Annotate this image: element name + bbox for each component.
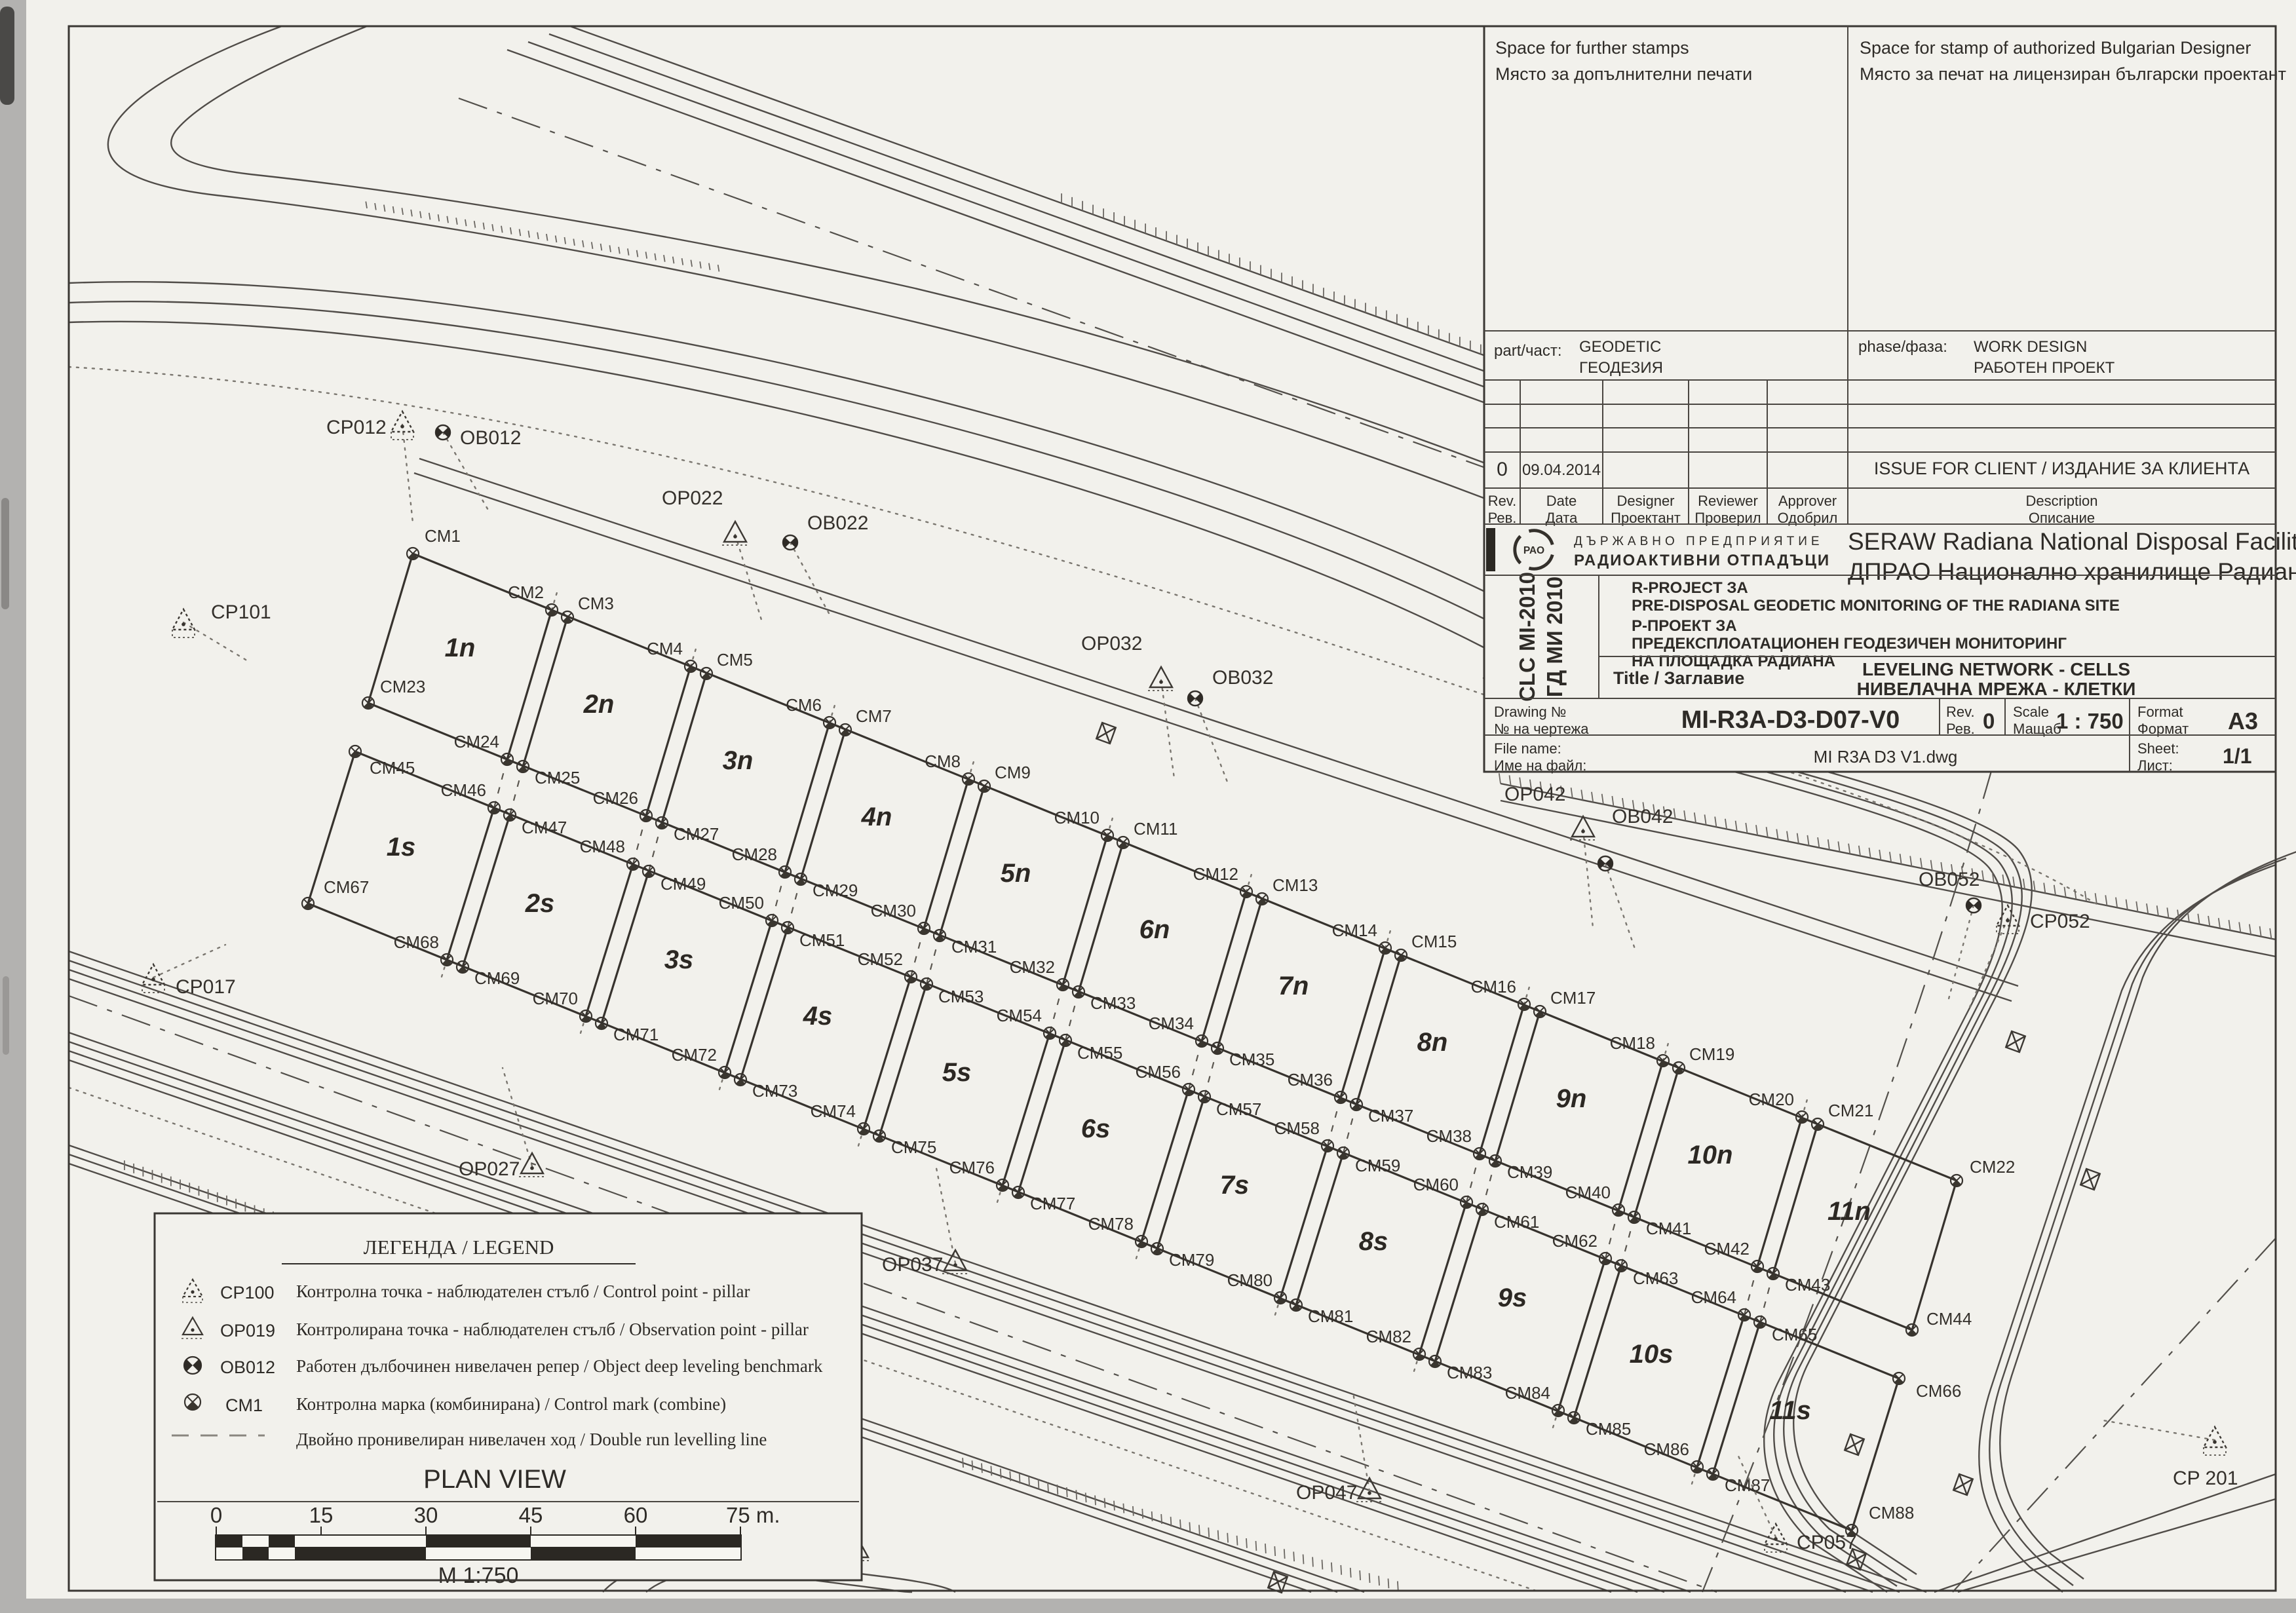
cm-mark-CM13 <box>1256 893 1268 905</box>
legend-code-cp: CP100 <box>220 1283 275 1303</box>
point-label-OB012: OB012 <box>460 427 521 449</box>
cell-label-6s: 6s <box>1081 1114 1111 1143</box>
point-label-OB022: OB022 <box>807 512 868 534</box>
header-designer-en: Designer <box>1603 493 1689 510</box>
cm-mark-CM1 <box>407 548 419 560</box>
cm-label-CM14: CM14 <box>1332 920 1377 940</box>
scale-label-bg: Мащаб <box>2013 721 2061 738</box>
cm-mark-CM43 <box>1767 1268 1779 1280</box>
rev-value: 0 <box>1983 709 1995 734</box>
legend-code-ob: OB012 <box>220 1357 275 1378</box>
cell-label-8s: 8s <box>1359 1227 1388 1256</box>
cm-mark-CM50 <box>766 915 778 926</box>
header-designer-bg: Проектант <box>1603 510 1689 527</box>
scan-bottom-strip <box>0 1599 2296 1613</box>
rao-logo-icon: РАО <box>1508 525 1559 574</box>
cell-label-11s: 11s <box>1769 1396 1811 1425</box>
revision-number: 0 <box>1484 459 1520 481</box>
cell-label-7n: 7n <box>1278 972 1309 1000</box>
file-name-value: MI R3A D3 V1.dwg <box>1641 747 2130 767</box>
scale-tick-60: 60 <box>609 1503 662 1528</box>
cm-label-CM19: CM19 <box>1689 1044 1734 1064</box>
levelling-line-icon <box>169 1426 267 1445</box>
cm-label-CM87: CM87 <box>1725 1475 1770 1495</box>
point-label-CP017: CP017 <box>176 976 236 998</box>
cm-label-CM72: CM72 <box>672 1045 717 1065</box>
cm-mark-CM81 <box>1290 1299 1302 1311</box>
cm-label-CM2: CM2 <box>508 582 544 602</box>
cell-label-1s: 1s <box>387 833 416 862</box>
cm-mark-CM66 <box>1893 1373 1905 1384</box>
point-label-CP012: CP012 <box>326 417 387 438</box>
cm-label-CM35: CM35 <box>1229 1050 1274 1069</box>
phase-label: phase/фаза: <box>1858 338 1947 356</box>
stamps-right-en: Space for stamp of authorized Bulgarian … <box>1860 38 2251 58</box>
cm-label-CM18: CM18 <box>1610 1033 1655 1053</box>
cm-label-CM5: CM5 <box>717 650 753 670</box>
cm-label-CM27: CM27 <box>674 824 719 844</box>
point-label-OB042: OB042 <box>1612 806 1673 827</box>
cell-label-10n: 10n <box>1688 1141 1733 1169</box>
cm-label-CM50: CM50 <box>719 893 764 913</box>
header-approver-bg: Одобрил <box>1767 510 1848 527</box>
cm-label-CM21: CM21 <box>1828 1101 1873 1120</box>
cm-label-CM32: CM32 <box>1010 957 1055 977</box>
code-line1: CLC MI-2010 <box>1514 572 1542 702</box>
cm-label-CM25: CM25 <box>535 768 580 788</box>
cm-mark-CM2 <box>546 604 558 616</box>
cm-label-CM47: CM47 <box>522 818 567 837</box>
cm-mark-CM48 <box>627 858 639 870</box>
cm-mark-CM28 <box>779 866 791 878</box>
cm-label-CM29: CM29 <box>813 881 858 900</box>
cm-label-CM22: CM22 <box>1970 1157 2015 1177</box>
point-label-OB052: OB052 <box>1919 869 1980 890</box>
cm-label-CM45: CM45 <box>370 758 415 778</box>
culvert-box-icon <box>1096 723 1116 744</box>
cm-mark-CM12 <box>1240 886 1252 898</box>
cm-label-CM81: CM81 <box>1308 1306 1353 1326</box>
cm-label-CM64: CM64 <box>1691 1287 1736 1307</box>
point-label-OP027: OP027 <box>459 1158 520 1180</box>
culvert-box-icon <box>2080 1169 2100 1190</box>
rev-label-bg: Рев. <box>1946 721 1975 738</box>
cm-label-CM69: CM69 <box>474 968 520 988</box>
project-line1: R-PROJECT ЗА <box>1632 579 1748 598</box>
title-value-en: LEVELING NETWORK - CELLS <box>1717 659 2276 680</box>
cm-mark-CM44 <box>1906 1324 1918 1336</box>
scanned-drawing-page: CM1CM2CM3CM4CM5CM6CM7CM8CM9CM10CM11CM12C… <box>0 0 2296 1613</box>
facility-name-en: SERAW Radiana National Disposal Facility <box>1848 528 2276 556</box>
benchmark-OB012 <box>436 425 450 440</box>
benchmark-icon <box>177 1350 208 1381</box>
point-label-OB032: OB032 <box>1212 667 1273 689</box>
sheet-label-en: Sheet: <box>2137 740 2179 757</box>
cm-mark-CM8 <box>963 773 974 785</box>
cm-label-CM82: CM82 <box>1366 1327 1411 1346</box>
cm-label-CM59: CM59 <box>1355 1156 1400 1175</box>
cm-label-CM52: CM52 <box>858 949 903 969</box>
pillar-CP101 <box>172 609 195 637</box>
cm-mark-CM52 <box>905 971 917 983</box>
header-date-en: Date <box>1520 493 1603 510</box>
drawing-number-label-bg: № на чертежа <box>1494 721 1588 738</box>
cm-label-CM9: CM9 <box>995 763 1031 782</box>
cm-mark-CM77 <box>1012 1186 1024 1198</box>
cell-label-10s: 10s <box>1630 1340 1674 1369</box>
sheet-label-bg: Лист: <box>2137 757 2173 774</box>
cm-mark-CM80 <box>1274 1292 1286 1304</box>
cm-label-CM73: CM73 <box>752 1081 797 1101</box>
cm-mark-CM37 <box>1350 1099 1362 1110</box>
cm-mark-CM11 <box>1117 837 1129 848</box>
cm-mark-CM10 <box>1101 829 1113 841</box>
culvert-box-icon <box>1845 1434 1864 1455</box>
scale-tick-15: 15 <box>295 1503 347 1528</box>
cm-mark-CM59 <box>1337 1147 1349 1159</box>
cm-label-CM68: CM68 <box>394 932 439 952</box>
cm-mark-CM30 <box>918 922 930 934</box>
cm-label-CM83: CM83 <box>1447 1363 1492 1382</box>
revision-date: 09.04.2014 <box>1520 461 1603 480</box>
culvert-box-icon <box>1953 1474 1973 1495</box>
format-value: A3 <box>2228 708 2258 735</box>
pillar-CP012 <box>391 411 413 440</box>
cm-label-CM16: CM16 <box>1471 977 1516 996</box>
code-line2: ГД МИ 2010 <box>1542 572 1569 702</box>
cm-label-CM15: CM15 <box>1411 932 1457 951</box>
cm-label-CM37: CM37 <box>1368 1106 1413 1126</box>
project-line3: Р-ПРОЕКТ ЗА <box>1632 617 1737 636</box>
cm-label-CM66: CM66 <box>1916 1381 1961 1401</box>
pillar-CP 201 <box>2204 1427 2226 1455</box>
legend-heading: ЛЕГЕНДА / LEGEND <box>282 1236 636 1264</box>
point-label-OP037: OP037 <box>882 1254 943 1276</box>
cm-label-CM57: CM57 <box>1216 1099 1261 1119</box>
cell-label-9n: 9n <box>1556 1084 1587 1113</box>
cm-label-CM48: CM48 <box>580 837 625 856</box>
cm-mark-CM45 <box>349 746 361 757</box>
cm-mark-CM35 <box>1212 1042 1223 1054</box>
cm-label-CM63: CM63 <box>1633 1268 1678 1288</box>
cm-label-CM34: CM34 <box>1149 1014 1194 1033</box>
cm-mark-CM23 <box>362 697 374 709</box>
cm-label-CM51: CM51 <box>799 930 845 950</box>
cm-mark-CM67 <box>302 898 314 909</box>
scale-caption: M 1:750 <box>367 1563 590 1589</box>
header-description-bg: Описание <box>1848 510 2276 527</box>
cm-mark-CM83 <box>1429 1356 1441 1367</box>
project-line4: ПРЕДЕКСПЛОАТАЦИОНЕН ГЕОДЕЗИЧЕН МОНИТОРИН… <box>1632 635 2067 653</box>
legend-code-op: OP019 <box>220 1321 275 1341</box>
cm-label-CM76: CM76 <box>949 1158 995 1177</box>
cm-mark-CM14 <box>1379 942 1391 954</box>
cm-label-CM44: CM44 <box>1926 1309 1972 1329</box>
cm-mark-CM87 <box>1707 1468 1719 1480</box>
cm-mark-CM32 <box>1057 979 1069 991</box>
cm-label-CM12: CM12 <box>1193 864 1238 884</box>
cm-mark-CM36 <box>1335 1091 1347 1103</box>
point-label-OP047: OP047 <box>1296 1482 1357 1504</box>
culvert-box-icon <box>2006 1031 2025 1052</box>
cm-label-CM77: CM77 <box>1030 1194 1075 1213</box>
scan-edge-strip <box>0 0 26 1613</box>
cm-label-CM61: CM61 <box>1494 1212 1539 1232</box>
project-code-vertical: CLC MI-2010 ГД МИ 2010 <box>1484 575 1599 698</box>
cm-mark-CM15 <box>1395 949 1407 961</box>
cm-label-CM55: CM55 <box>1077 1043 1122 1063</box>
cm-mark-CM6 <box>824 717 835 729</box>
benchmark-OB022 <box>783 535 797 550</box>
phase-value-bg: РАБОТЕН ПРОЕКТ <box>1974 359 2114 377</box>
cm-mark-CM63 <box>1615 1260 1627 1272</box>
cm-label-CM80: CM80 <box>1227 1270 1272 1290</box>
cell-label-1n: 1n <box>445 634 476 662</box>
phase-value-en: WORK DESIGN <box>1974 338 2087 356</box>
cm-mark-CM17 <box>1534 1006 1546 1017</box>
drawing-number-label-en: Drawing № <box>1494 704 1566 721</box>
cm-mark-CM57 <box>1198 1091 1210 1103</box>
format-label-bg: Формат <box>2137 721 2189 738</box>
cm-label-CM54: CM54 <box>997 1006 1042 1025</box>
cm-label-CM79: CM79 <box>1169 1250 1214 1270</box>
legend-text-line: Двойно пронивелиран нивелачен ход / Doub… <box>296 1430 767 1450</box>
cell-label-5s: 5s <box>942 1058 972 1087</box>
cm-mark-CM85 <box>1568 1412 1580 1424</box>
cm-mark-CM46 <box>488 802 500 814</box>
cm-mark-CM24 <box>501 753 513 765</box>
pillar-CP057 <box>1765 1524 1787 1552</box>
scale-tick-75: 75 m. <box>726 1503 780 1528</box>
pillar-OP042 <box>1570 816 1596 840</box>
cm-label-CM1: CM1 <box>425 526 461 546</box>
cm-label-CM53: CM53 <box>938 987 984 1006</box>
cell-label-9s: 9s <box>1498 1283 1527 1312</box>
legend-text-cm: Контролна марка (комбинирана) / Control … <box>296 1394 726 1414</box>
cm-label-CM23: CM23 <box>380 677 425 696</box>
part-label: part/част: <box>1494 342 1562 360</box>
org-name-line2: РАДИОАКТИВНИ ОТПАДЪЦИ <box>1574 552 1830 570</box>
scale-value: 1 : 750 <box>2056 709 2124 734</box>
cm-mark-CM56 <box>1183 1084 1195 1095</box>
cm-label-CM43: CM43 <box>1785 1275 1830 1295</box>
cm-label-CM56: CM56 <box>1136 1062 1181 1082</box>
legend-text-ob: Работен дълбочинен нивелачен репер / Obj… <box>296 1356 822 1376</box>
scale-label-en: Scale <box>2013 704 2049 721</box>
cm-label-CM28: CM28 <box>732 844 777 864</box>
point-label-CP057: CP057 <box>1797 1532 1857 1553</box>
cm-label-CM78: CM78 <box>1088 1214 1134 1234</box>
benchmark-OB052 <box>1966 898 1981 913</box>
point-label-OP032: OP032 <box>1081 633 1142 655</box>
cm-label-CM33: CM33 <box>1090 993 1136 1013</box>
plan-view-label: PLAN VIEW <box>298 1465 691 1494</box>
cm-mark-CM22 <box>1951 1175 1962 1186</box>
cm-label-CM74: CM74 <box>811 1101 856 1121</box>
cm-mark-CM65 <box>1754 1316 1766 1328</box>
cm-label-CM86: CM86 <box>1644 1439 1689 1459</box>
cm-label-CM38: CM38 <box>1426 1126 1472 1146</box>
cm-mark-CM70 <box>580 1010 592 1022</box>
drawing-number: MI-R3A-D3-D07-V0 <box>1641 706 1940 734</box>
rev-label-en: Rev. <box>1946 704 1975 721</box>
cm-label-CM30: CM30 <box>871 901 916 920</box>
point-label-CP 201: CP 201 <box>2173 1468 2238 1489</box>
stamps-left-bg: Място за допълнителни печати <box>1495 64 1752 85</box>
part-value-en: GEODETIC <box>1579 338 1661 356</box>
file-name-label-en: File name: <box>1494 740 1561 757</box>
header-approver-en: Approver <box>1767 493 1848 510</box>
cm-mark-CM4 <box>685 660 697 672</box>
cm-label-CM6: CM6 <box>786 695 822 715</box>
cm-mark-CM54 <box>1044 1027 1056 1039</box>
cm-label-CM84: CM84 <box>1505 1383 1550 1403</box>
cm-mark-CM26 <box>640 810 652 822</box>
benchmark-OB042 <box>1598 856 1613 871</box>
cm-label-CM3: CM3 <box>578 594 614 613</box>
cm-label-CM20: CM20 <box>1749 1090 1794 1109</box>
header-description-en: Description <box>1848 493 2276 510</box>
revision-description: ISSUE FOR CLIENT / ИЗДАНИЕ ЗА КЛИЕНТА <box>1848 459 2276 479</box>
legend-text-cp: Контролна точка - наблюдателен стълб / C… <box>296 1281 750 1302</box>
cm-label-CM42: CM42 <box>1704 1239 1750 1259</box>
header-reviewer-en: Reviewer <box>1689 493 1767 510</box>
observation-point-icon <box>176 1312 210 1346</box>
svg-text:РАО: РАО <box>1523 545 1544 556</box>
cm-label-CM67: CM67 <box>324 877 369 897</box>
cell-label-8n: 8n <box>1417 1028 1448 1057</box>
title-value-bg: НИВЕЛАЧНА МРЕЖА - КЛЕТКИ <box>1717 679 2276 700</box>
cm-label-CM36: CM36 <box>1288 1070 1333 1090</box>
cm-label-CM31: CM31 <box>951 937 997 957</box>
cm-label-CM49: CM49 <box>660 874 706 894</box>
cell-label-7s: 7s <box>1220 1171 1250 1200</box>
cell-label-2s: 2s <box>525 889 555 918</box>
cm-mark-CM55 <box>1060 1034 1071 1046</box>
pillar-OP022 <box>722 522 748 545</box>
cm-mark-CM72 <box>719 1067 731 1078</box>
control-point-icon <box>176 1274 210 1308</box>
cm-mark-CM76 <box>997 1179 1008 1191</box>
format-label-en: Format <box>2137 704 2183 721</box>
pillar-OP032 <box>1148 667 1174 691</box>
pillar-CP017 <box>142 964 164 993</box>
cell-label-4s: 4s <box>803 1002 833 1031</box>
cell-label-2n: 2n <box>583 690 615 719</box>
file-name-label-bg: Име на файл: <box>1494 757 1586 774</box>
header-rev-en: Rev. <box>1484 493 1520 510</box>
stamps-left-en: Space for further stamps <box>1495 38 1689 58</box>
control-mark-icon <box>177 1386 208 1418</box>
cm-label-CM71: CM71 <box>613 1025 659 1044</box>
cm-label-CM46: CM46 <box>441 780 486 800</box>
cm-label-CM13: CM13 <box>1272 875 1318 895</box>
scale-tick-30: 30 <box>400 1503 452 1528</box>
point-label-OP022: OP022 <box>662 487 723 509</box>
cm-label-CM85: CM85 <box>1586 1419 1631 1439</box>
cell-label-5n: 5n <box>1001 859 1031 888</box>
cm-label-CM62: CM62 <box>1552 1231 1598 1251</box>
point-label-CP101: CP101 <box>211 601 271 623</box>
header-date-bg: Дата <box>1520 510 1603 527</box>
scale-bar <box>215 1534 742 1561</box>
project-line2: PRE-DISPOSAL GEODETIC MONITORING OF THE … <box>1632 597 2120 615</box>
cm-mark-CM19 <box>1673 1062 1685 1074</box>
sheet-value: 1/1 <box>2223 744 2251 769</box>
cm-mark-CM58 <box>1322 1140 1333 1152</box>
scan-smudge-2 <box>1 498 9 609</box>
cm-label-CM70: CM70 <box>533 989 578 1008</box>
cm-mark-CM33 <box>1073 986 1084 998</box>
cm-label-CM58: CM58 <box>1274 1118 1320 1138</box>
scan-smudge-3 <box>3 976 9 1055</box>
part-value-bg: ГЕОДЕЗИЯ <box>1579 359 1663 377</box>
stamps-right-bg: Място за печат на лицензиран български п… <box>1860 64 2286 85</box>
cm-mark-CM68 <box>441 954 453 966</box>
cm-label-CM40: CM40 <box>1565 1183 1611 1202</box>
cm-label-CM65: CM65 <box>1772 1325 1817 1344</box>
cm-mark-CM39 <box>1489 1155 1501 1167</box>
scale-tick-0: 0 <box>190 1503 242 1528</box>
cm-mark-CM34 <box>1196 1035 1208 1047</box>
legend-text-op: Контролирана точка - наблюдателен стълб … <box>296 1319 809 1340</box>
header-reviewer-bg: Проверил <box>1689 510 1767 527</box>
org-name-line1: ДЪРЖАВНО ПРЕДПРИЯТИЕ <box>1574 535 1824 549</box>
header-rev-bg: Рев. <box>1484 510 1520 527</box>
cell-label-3n: 3n <box>723 746 754 775</box>
cm-mark-CM61 <box>1476 1204 1488 1215</box>
facility-name-bg: ДПРАО Национално хранилище Радиана <box>1848 558 2276 586</box>
cm-label-CM10: CM10 <box>1054 808 1100 827</box>
cell-label-6n: 6n <box>1139 915 1170 944</box>
cm-label-CM7: CM7 <box>856 706 892 726</box>
cm-mark-CM74 <box>858 1123 870 1135</box>
cm-mark-CM79 <box>1151 1243 1163 1255</box>
cm-mark-CM21 <box>1812 1118 1824 1130</box>
point-label-OP042: OP042 <box>1504 784 1565 805</box>
cell-label-4n: 4n <box>861 803 892 831</box>
cm-mark-CM78 <box>1136 1236 1147 1247</box>
cm-label-CM4: CM4 <box>647 639 683 658</box>
cm-label-CM8: CM8 <box>925 751 961 771</box>
cm-label-CM11: CM11 <box>1134 819 1177 839</box>
cm-label-CM26: CM26 <box>593 788 638 808</box>
cell-label-3s: 3s <box>664 945 694 974</box>
scan-smudge-1 <box>0 7 14 105</box>
cm-label-CM60: CM60 <box>1413 1175 1459 1194</box>
cm-label-CM88: CM88 <box>1869 1503 1914 1523</box>
cell-label-11n: 11n <box>1827 1197 1871 1226</box>
scale-tick-45: 45 <box>505 1503 557 1528</box>
legend-code-cm: CM1 <box>225 1395 263 1416</box>
cm-label-CM75: CM75 <box>891 1137 936 1157</box>
cm-mark-CM41 <box>1628 1211 1640 1223</box>
point-label-CP052: CP052 <box>2030 911 2090 932</box>
benchmark-OB032 <box>1188 691 1202 706</box>
cm-label-CM17: CM17 <box>1550 988 1596 1008</box>
cm-label-CM39: CM39 <box>1507 1162 1552 1182</box>
cm-label-CM24: CM24 <box>454 732 499 751</box>
cm-label-CM41: CM41 <box>1646 1219 1691 1238</box>
